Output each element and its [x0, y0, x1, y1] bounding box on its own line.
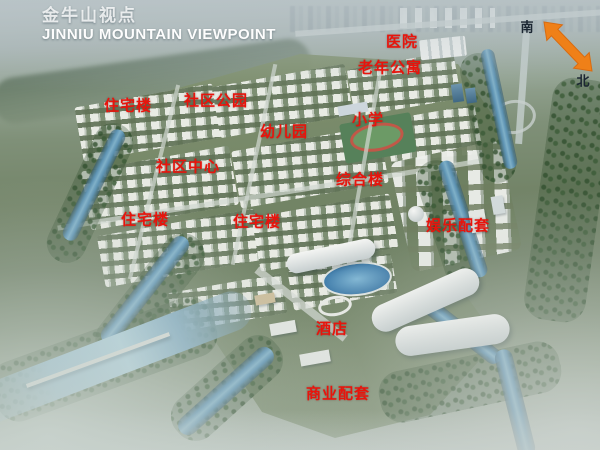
- hospital-complex: [419, 36, 467, 61]
- glass-tower: [451, 83, 464, 102]
- title-english: JINNIU MOUNTAIN VIEWPOINT: [42, 26, 276, 43]
- viewpoint-title: 金牛山视点 JINNIU MOUNTAIN VIEWPOINT: [42, 6, 276, 43]
- title-chinese: 金牛山视点: [42, 6, 276, 26]
- glass-tower: [465, 87, 477, 103]
- map-label: 医院: [386, 31, 418, 52]
- compass-south-label: 南: [520, 17, 533, 36]
- dome-building: [408, 206, 424, 222]
- aerial-masterplan-rendering: 金牛山视点 JINNIU MOUNTAIN VIEWPOINT 南 北 医院老年…: [0, 0, 600, 450]
- compass-north-label: 北: [576, 71, 589, 90]
- running-track: [348, 119, 406, 156]
